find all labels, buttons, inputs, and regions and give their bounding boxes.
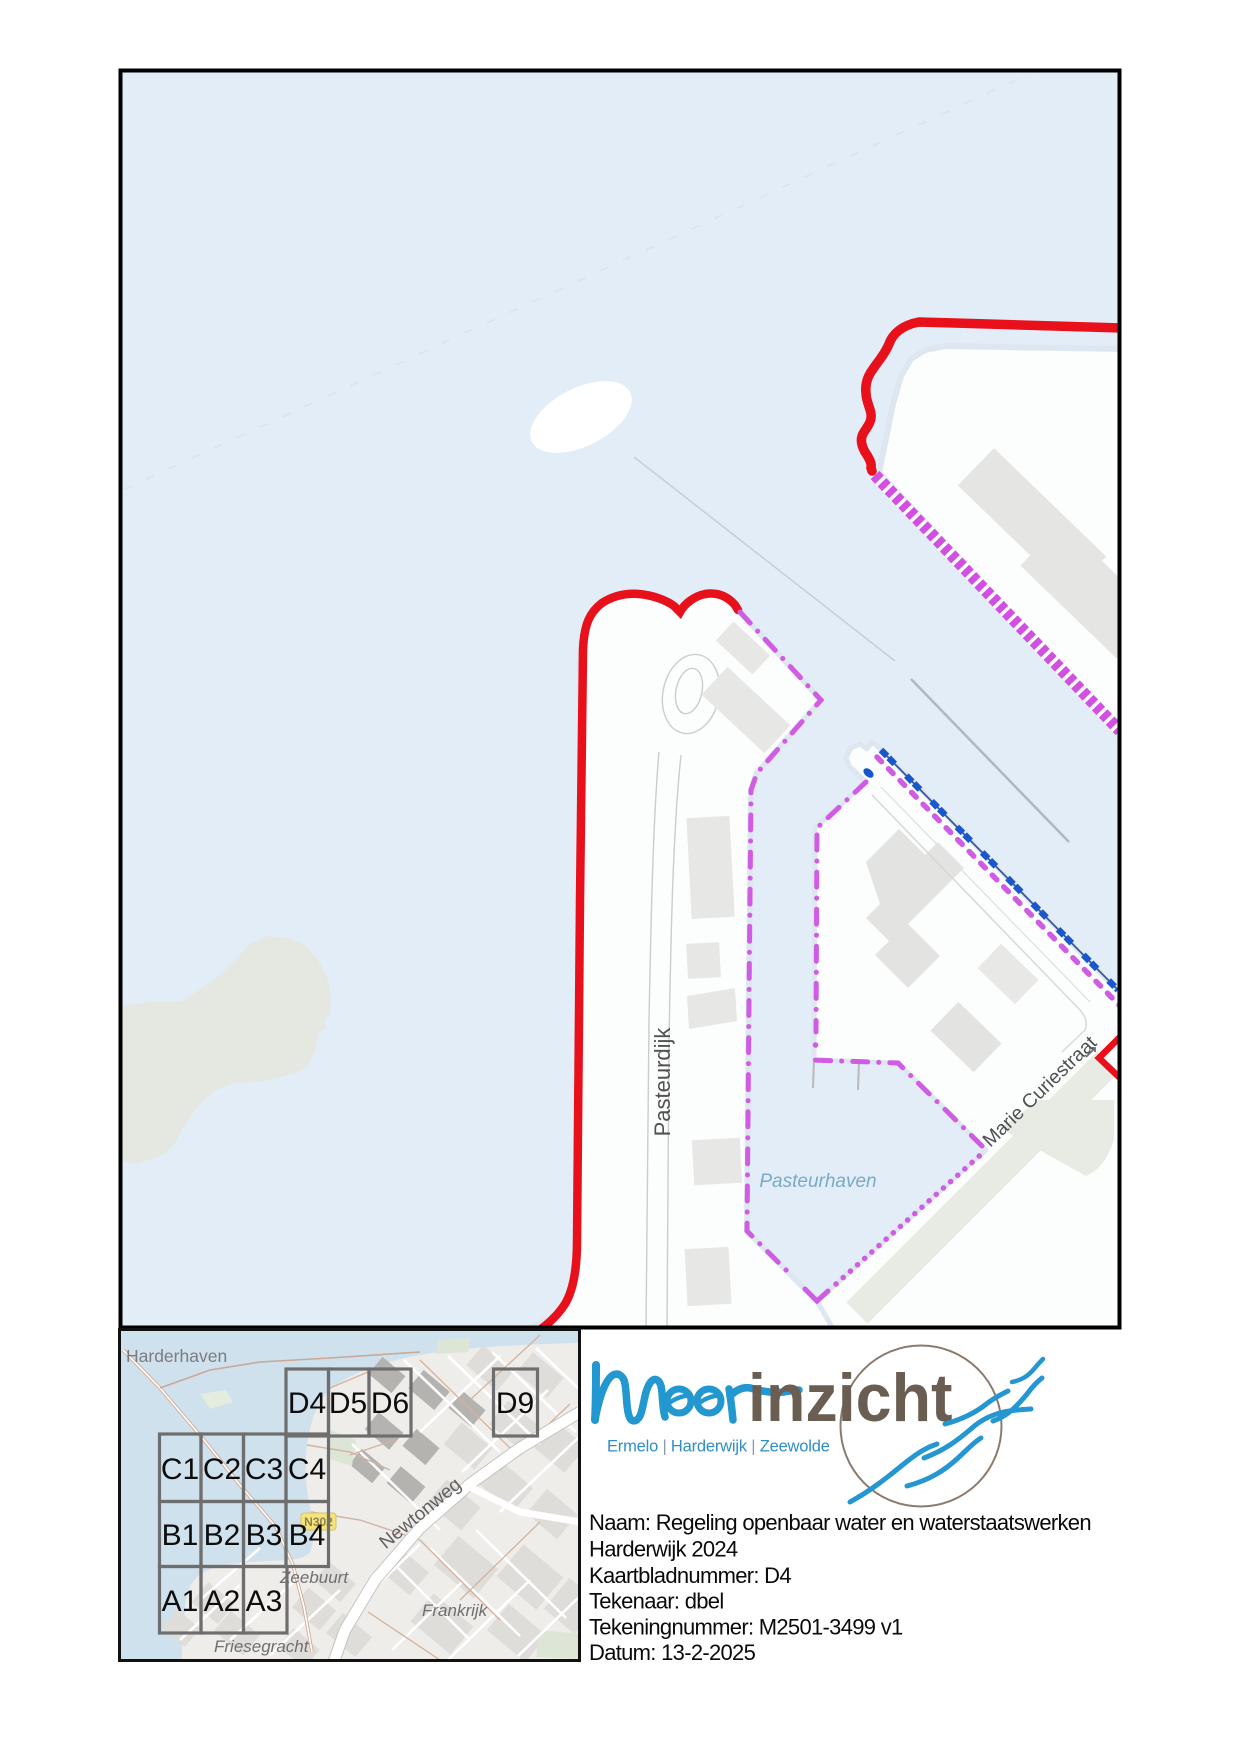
svg-text:Kaartbladnummer: D4: Kaartbladnummer: D4 — [589, 1563, 791, 1588]
svg-text:A1: A1 — [162, 1585, 199, 1618]
svg-text:Friesegracht: Friesegracht — [214, 1637, 310, 1656]
svg-text:Tekenaar: dbel: Tekenaar: dbel — [589, 1589, 724, 1614]
svg-text:Ermelo | Harderwijk | Zeewolde: Ermelo | Harderwijk | Zeewolde — [607, 1438, 830, 1456]
svg-text:Zeebuurt: Zeebuurt — [279, 1568, 349, 1587]
svg-text:Frankrijk: Frankrijk — [422, 1601, 489, 1620]
svg-text:C3: C3 — [245, 1453, 283, 1486]
svg-text:B4: B4 — [289, 1519, 326, 1552]
svg-text:C1: C1 — [161, 1453, 199, 1486]
svg-text:Harderwijk 2024: Harderwijk 2024 — [589, 1537, 738, 1562]
svg-text:D9: D9 — [496, 1387, 534, 1420]
svg-text:Naam: Regeling openbaar water: Naam: Regeling openbaar water en waterst… — [589, 1510, 1091, 1535]
svg-text:A2: A2 — [204, 1585, 241, 1618]
svg-text:C2: C2 — [203, 1453, 241, 1486]
svg-text:B2: B2 — [204, 1519, 241, 1552]
svg-text:Pasteurhaven: Pasteurhaven — [759, 1171, 876, 1192]
svg-text:B3: B3 — [246, 1519, 283, 1552]
svg-text:B1: B1 — [162, 1519, 199, 1552]
svg-text:Harderhaven: Harderhaven — [126, 1346, 227, 1366]
svg-text:Tekeningnummer: M2501-3499 v1: Tekeningnummer: M2501-3499 v1 — [589, 1615, 903, 1640]
svg-text:C4: C4 — [288, 1453, 326, 1486]
svg-text:Datum: 13-2-2025: Datum: 13-2-2025 — [589, 1640, 756, 1665]
svg-text:inzicht: inzicht — [748, 1361, 953, 1437]
svg-text:A3: A3 — [246, 1585, 283, 1618]
svg-text:D5: D5 — [329, 1387, 367, 1420]
svg-text:D6: D6 — [371, 1387, 409, 1420]
svg-text:Pasteurdijk: Pasteurdijk — [650, 1027, 675, 1137]
svg-text:D4: D4 — [288, 1387, 326, 1420]
